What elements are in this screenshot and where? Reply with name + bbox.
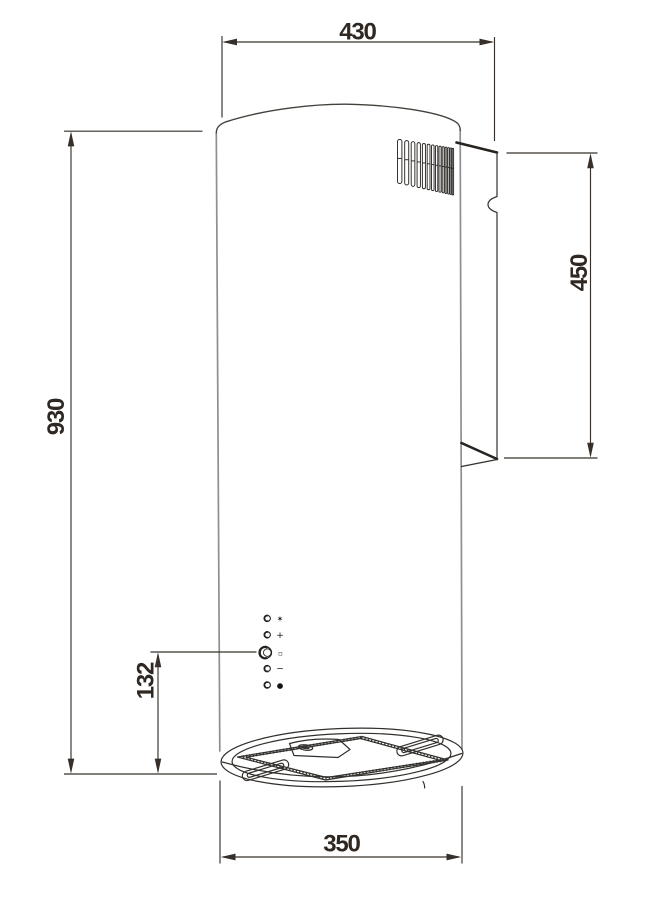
drawing-canvas: ✶ + ▫ − ● 430 [0,0,658,898]
display-icon: ▫ [278,650,283,658]
dim-duct-cover-height-label: 450 [566,254,593,291]
fan-speed-icon: ✶ [277,615,284,624]
dimension-total-height: 930 [43,131,217,774]
filter-latch [290,739,351,758]
dimension-top-width: 430 [222,19,495,142]
plus-icon: + [276,631,284,641]
fan-speed-button: ✶ [264,615,283,624]
dim-body-diameter-label: 350 [323,831,360,858]
hood-technical-drawing: ✶ + ▫ − ● 430 [0,0,658,898]
light-icon: ● [277,681,284,690]
light-button: ● [264,681,283,690]
minus-button: − [264,665,283,675]
minus-icon: − [276,665,284,675]
plus-button: + [264,631,283,641]
bottom-panel [220,724,464,791]
mounting-bracket [457,143,498,467]
dimension-body-diameter: 350 [220,781,462,864]
dim-controls-offset-label: 132 [133,662,160,699]
knob-button: ▫ [260,647,283,658]
dimension-controls-offset: 132 [133,652,257,774]
dim-top-width-label: 430 [339,19,376,46]
cylinder-body [216,104,462,751]
dimension-duct-cover-height: 450 [504,153,598,458]
dim-total-height-label: 930 [43,398,70,435]
vent-slots [398,140,454,196]
control-panel: ✶ + ▫ − ● [260,615,284,691]
